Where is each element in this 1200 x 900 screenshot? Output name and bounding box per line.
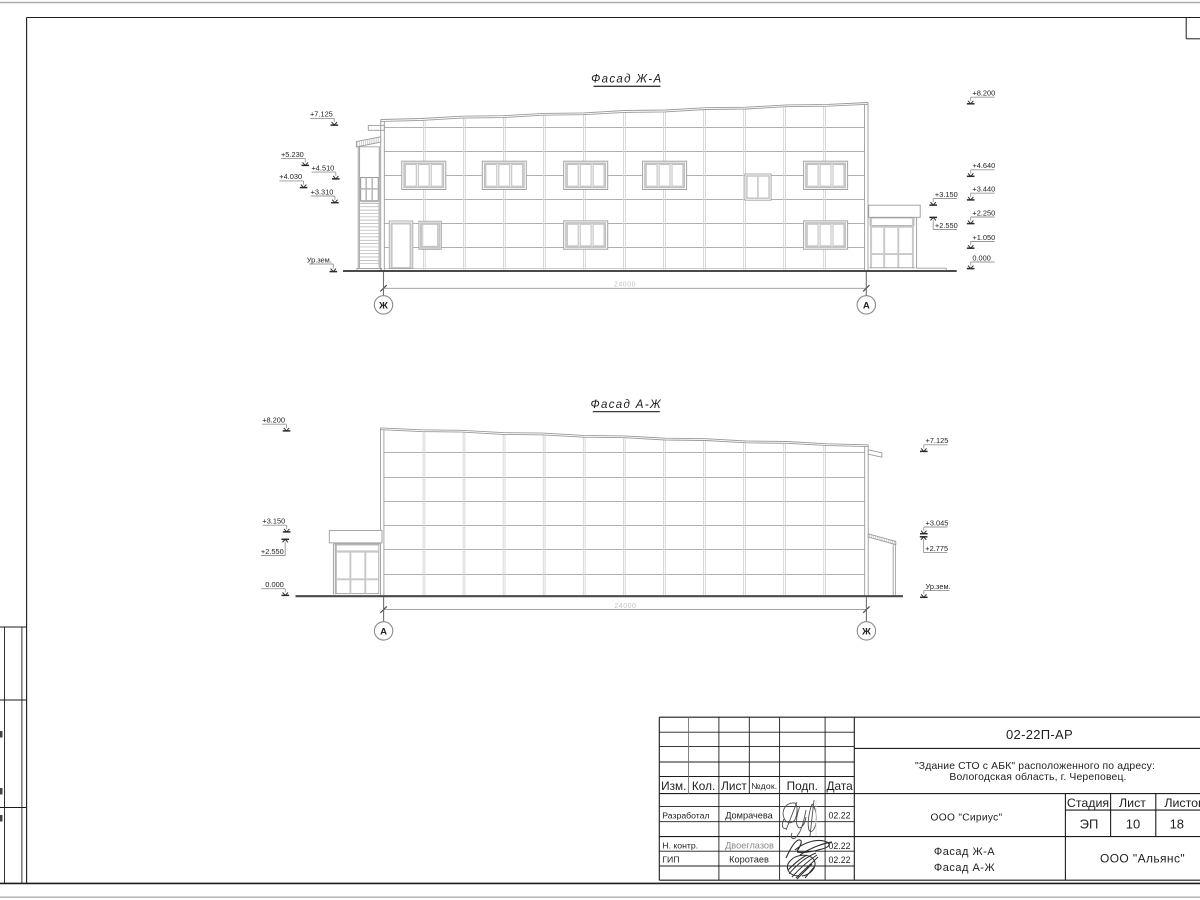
svg-text:02.22: 02.22 — [828, 855, 850, 865]
svg-text:+8.200: +8.200 — [972, 89, 995, 98]
svg-text:Подп.: Подп. — [787, 779, 818, 793]
svg-text:+2.250: +2.250 — [972, 208, 995, 217]
svg-text:Дата: Дата — [827, 779, 854, 793]
svg-text:Двоеглазов: Двоеглазов — [725, 841, 774, 851]
svg-text:Ж: Ж — [861, 626, 871, 637]
svg-text:10: 10 — [1126, 817, 1140, 832]
svg-text:ЭП: ЭП — [1080, 817, 1099, 832]
svg-text:Фасад Ж-А: Фасад Ж-А — [591, 74, 662, 86]
svg-text:+3.310: +3.310 — [311, 187, 334, 196]
svg-text:Кол.: Кол. — [692, 779, 715, 793]
svg-text:Н. контр.: Н. контр. — [662, 841, 698, 851]
svg-text:ООО "Альянс": ООО "Альянс" — [1100, 852, 1185, 866]
svg-text:Фасад А-Ж: Фасад А-Ж — [934, 862, 995, 874]
svg-text:Лист: Лист — [1119, 796, 1146, 810]
svg-text:№док.: №док. — [751, 781, 777, 791]
svg-text:Фасад А-Ж: Фасад А-Ж — [590, 399, 662, 411]
svg-text:Вологодская область, г. Черепо: Вологодская область, г. Череповец. — [949, 771, 1126, 783]
svg-text:Листов: Листов — [1164, 796, 1200, 810]
svg-text:Ур.зем.: Ур.зем. — [926, 582, 951, 591]
svg-text:Домрачева: Домрачева — [725, 810, 773, 820]
svg-text:+2.550: +2.550 — [935, 221, 958, 230]
svg-text:+7.125: +7.125 — [310, 110, 333, 119]
svg-text:А: А — [380, 626, 387, 637]
svg-text:+5.230: +5.230 — [281, 150, 304, 159]
svg-text:Ур.зем.: Ур.зем. — [307, 255, 332, 264]
svg-text:+4.640: +4.640 — [972, 161, 995, 170]
svg-text:+3.150: +3.150 — [935, 190, 958, 199]
svg-text:+3.440: +3.440 — [972, 185, 995, 194]
svg-text:+2.775: +2.775 — [925, 544, 948, 553]
svg-text:02-22П-АР: 02-22П-АР — [1006, 727, 1073, 742]
svg-text:+2.550: +2.550 — [261, 547, 284, 556]
svg-text:+8.200: +8.200 — [262, 416, 285, 425]
svg-text:Стадия: Стадия — [1067, 796, 1109, 810]
svg-text:Ж: Ж — [378, 300, 388, 311]
svg-text:+4.510: +4.510 — [311, 163, 334, 172]
svg-text:02.22: 02.22 — [828, 811, 850, 821]
svg-text:+3.150: +3.150 — [262, 517, 285, 526]
svg-text:+1.050: +1.050 — [972, 233, 995, 242]
svg-text:0.000: 0.000 — [265, 580, 284, 589]
svg-text:Лист: Лист — [721, 779, 747, 793]
svg-text:+7.125: +7.125 — [926, 436, 949, 445]
svg-text:0.000: 0.000 — [972, 253, 991, 262]
svg-text:Фасад Ж-А: Фасад Ж-А — [934, 846, 995, 858]
svg-text:+3.045: +3.045 — [926, 518, 949, 527]
svg-text:Разработал: Разработал — [662, 810, 709, 820]
svg-text:24000: 24000 — [614, 282, 636, 289]
svg-text:ООО "Сириус": ООО "Сириус" — [931, 812, 1003, 823]
svg-text:18: 18 — [1170, 817, 1184, 832]
svg-text:А: А — [863, 300, 870, 311]
svg-text:Коротаев: Коротаев — [729, 855, 769, 865]
svg-text:"Здание СТО с АБК" расположенн: "Здание СТО с АБК" расположенного по адр… — [915, 761, 1155, 772]
svg-text:ГИП: ГИП — [662, 855, 679, 865]
svg-text:24000: 24000 — [614, 603, 636, 610]
svg-text:+4.030: +4.030 — [279, 172, 302, 181]
svg-text:Изм.: Изм. — [661, 779, 686, 793]
